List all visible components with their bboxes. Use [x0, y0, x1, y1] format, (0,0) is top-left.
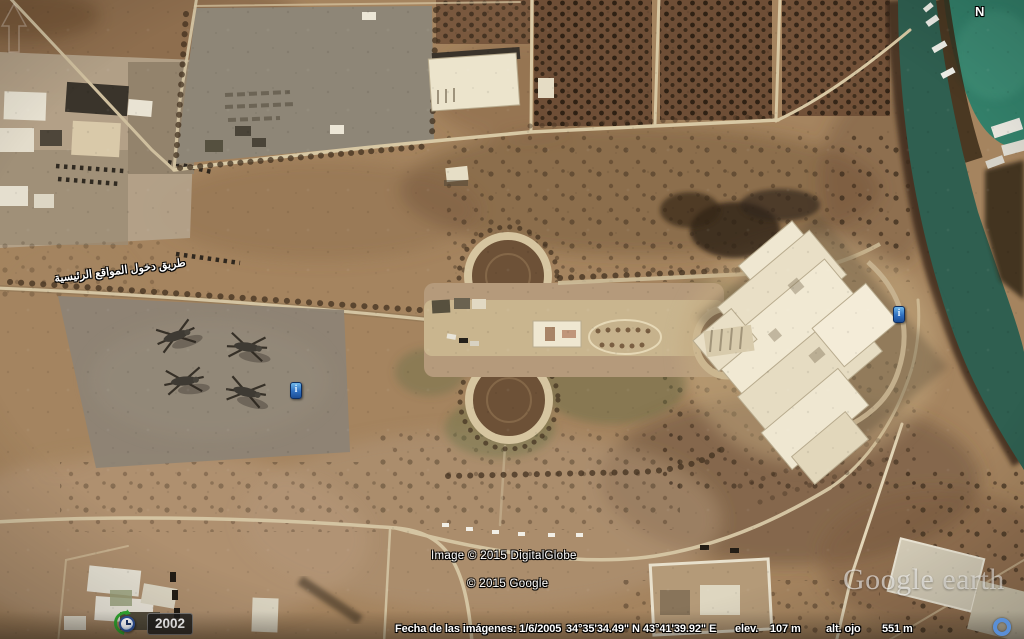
eye-altitude-label: alt. ojo — [826, 623, 861, 635]
compass-north-label[interactable]: N — [975, 4, 984, 19]
imagery-year-badge[interactable]: 2002 — [147, 613, 193, 635]
elevation-value: 107 m — [770, 623, 801, 635]
elevation-label: elev. — [735, 623, 758, 635]
streaming-indicator-icon — [993, 618, 1011, 636]
info-marker-palace[interactable]: i — [893, 306, 905, 323]
longitude: 43°41'39.92" E — [643, 623, 716, 635]
info-icon: i — [898, 308, 901, 319]
watermark-earth: earth — [942, 563, 1004, 596]
info-marker-helipad[interactable]: i — [290, 382, 302, 399]
zoom-slider-hint[interactable] — [0, 0, 28, 58]
google-earth-viewport[interactable]: N طريق دخول المواقع الرئيسية i i 2002 Im… — [0, 0, 1024, 639]
imagery-date: Fecha de las imágenes: 1/6/2005 — [395, 623, 561, 635]
copyright-digitalglobe: Image © 2015 DigitalGlobe — [431, 550, 577, 562]
historical-imagery-control[interactable]: 2002 — [116, 613, 193, 635]
clock-icon[interactable] — [116, 613, 138, 635]
eye-altitude-value: 551 m — [882, 623, 913, 635]
watermark-google: Google — [843, 563, 934, 596]
info-icon: i — [295, 384, 298, 395]
satellite-imagery[interactable] — [0, 0, 1024, 639]
google-earth-watermark: Googleearth — [843, 563, 1005, 597]
navigation-control[interactable] — [904, 0, 1024, 280]
latitude: 34°35'34.49" N — [566, 623, 640, 635]
copyright-google: © 2015 Google — [467, 578, 548, 590]
